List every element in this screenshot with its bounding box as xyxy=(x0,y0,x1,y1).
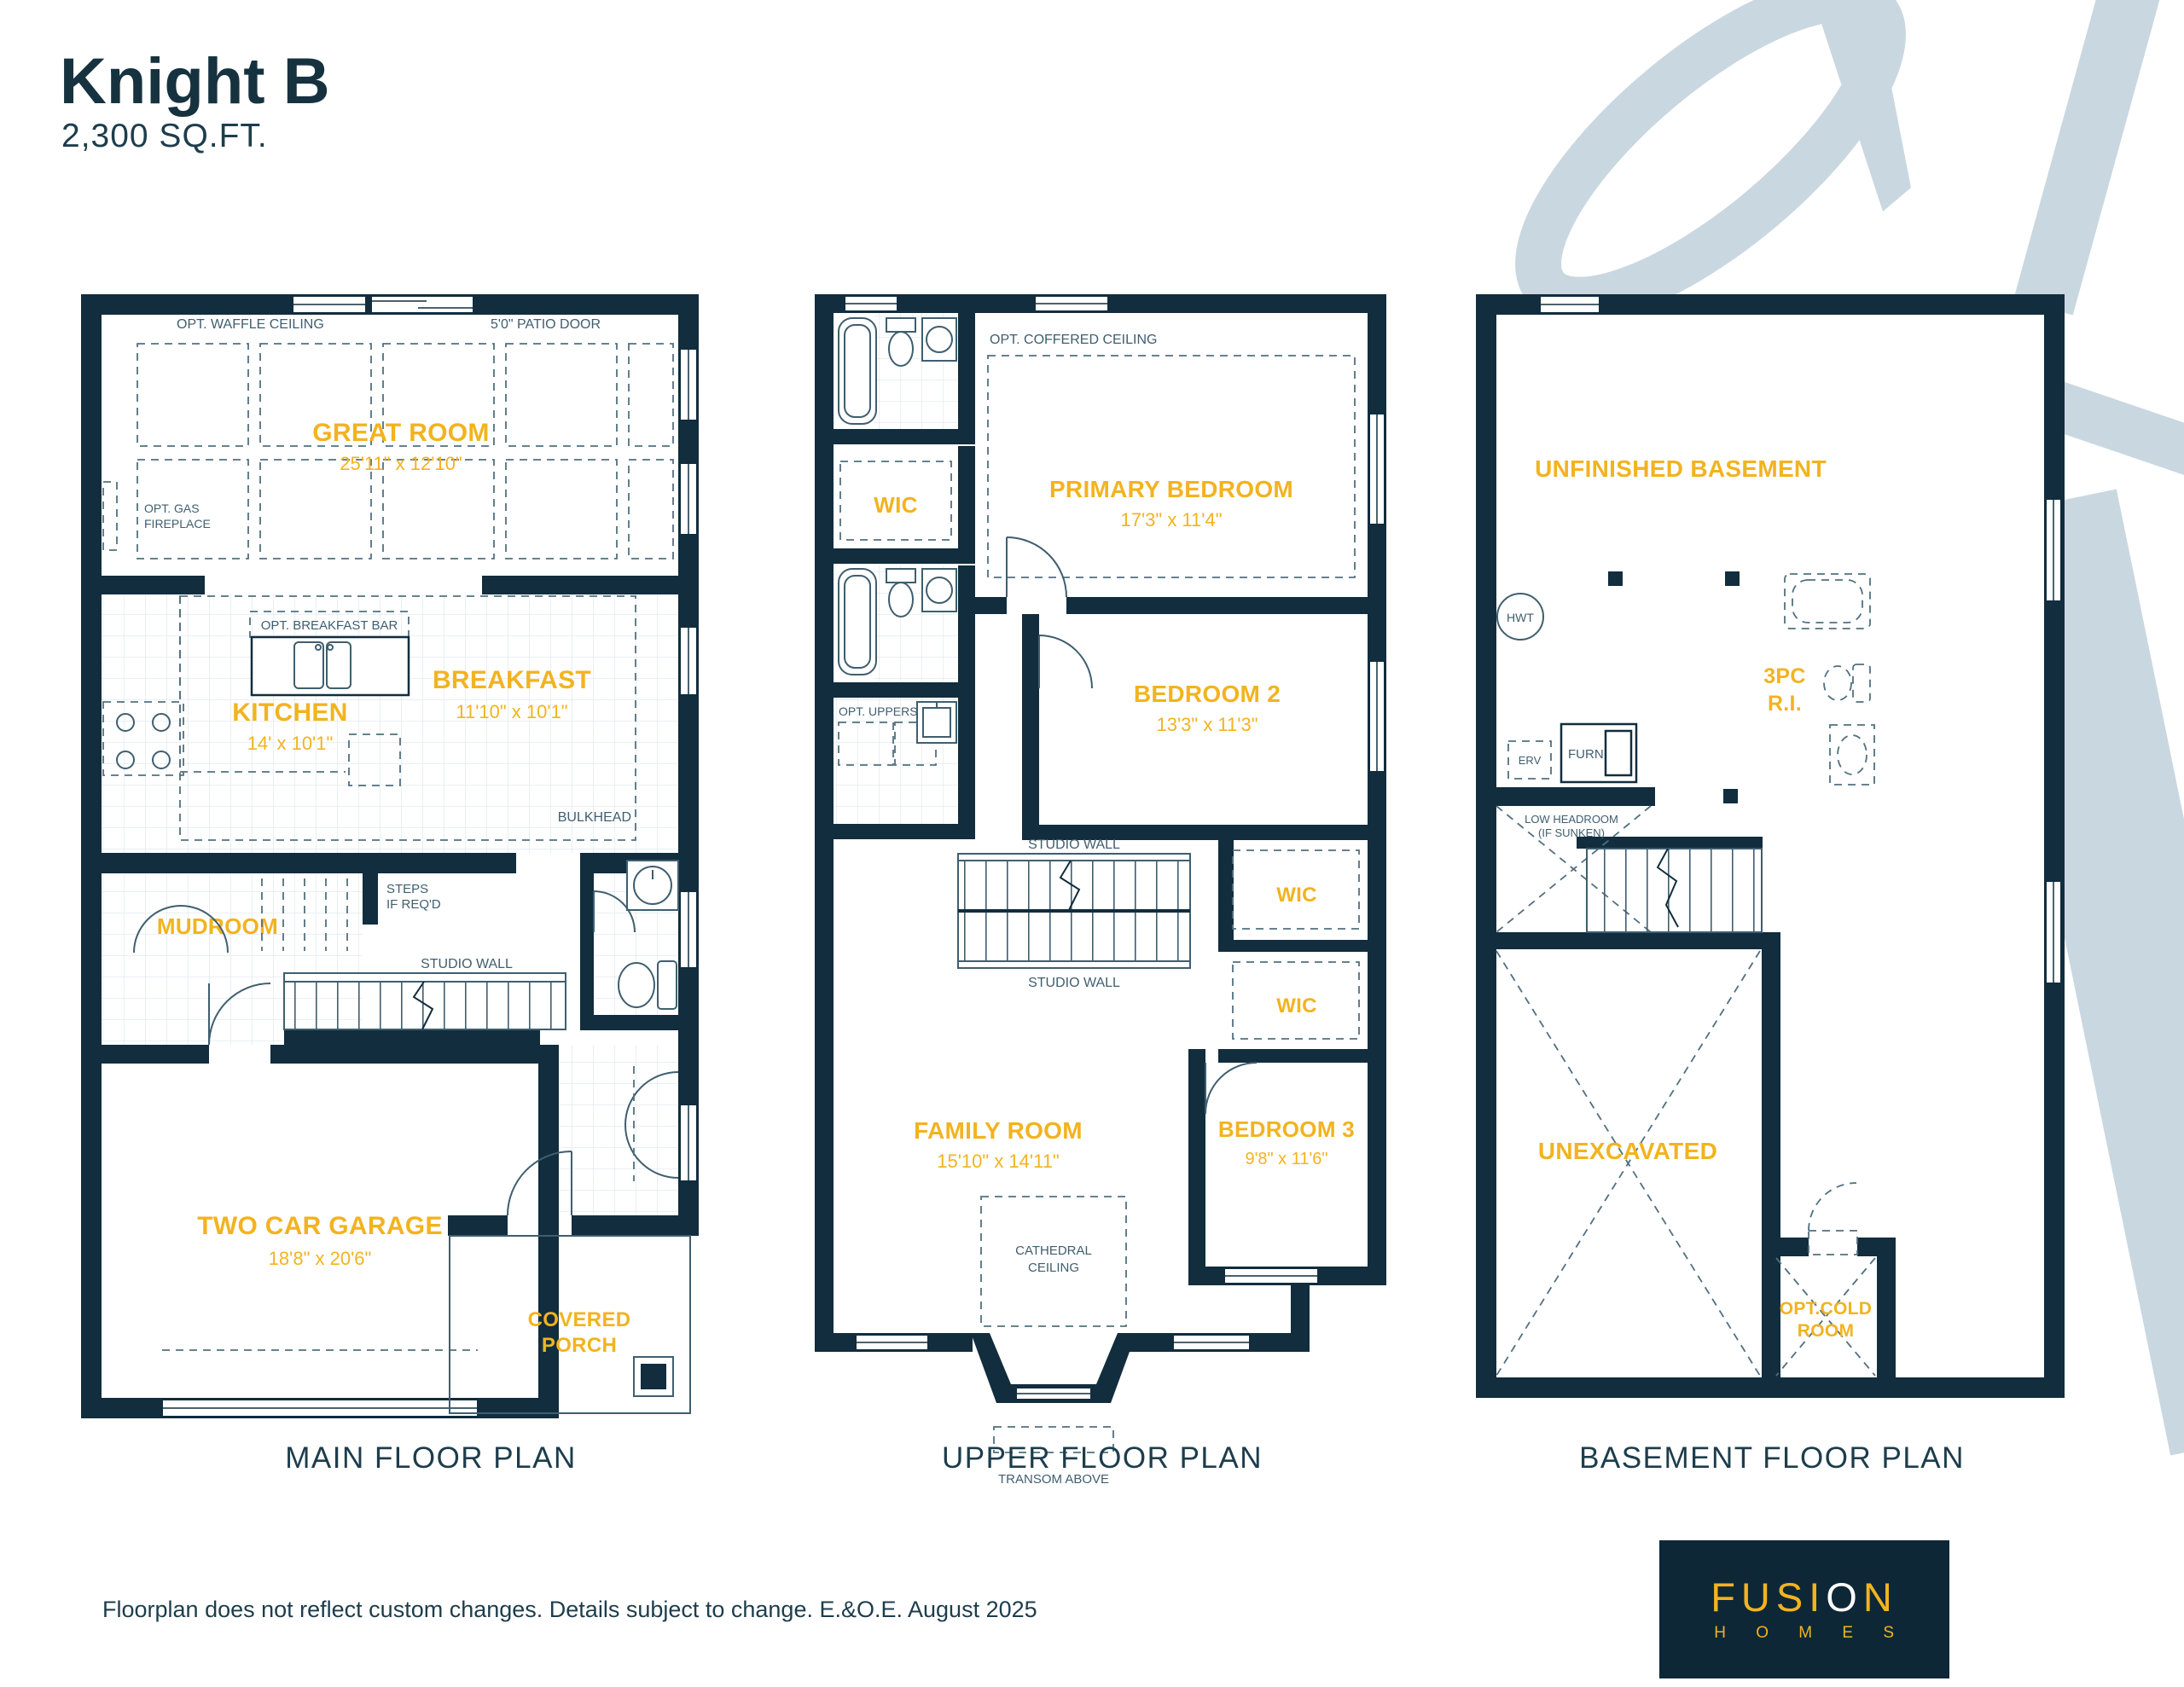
mudroom-label: MUDROOM xyxy=(157,913,278,939)
cold-room-label-2: ROOM xyxy=(1798,1321,1855,1341)
kitchen-label: KITCHEN xyxy=(232,699,347,727)
floorplan-sheet: Knight B 2,300 SQ.FT. xyxy=(0,0,2184,1687)
cold-room-label-1: OPT.COLD xyxy=(1780,1299,1873,1319)
window-icon xyxy=(293,296,366,313)
window-icon xyxy=(856,1335,928,1350)
hwt-label: HWT xyxy=(1507,611,1534,624)
logo-fusi: FUSI xyxy=(1711,1574,1826,1620)
upper-stairs: STUDIO WALL STUDIO WALL xyxy=(958,838,1190,990)
basement-floor-plan: UNFINISHED BASEMENT HWT 3PC R.I. xyxy=(1476,294,2065,1399)
breakfast-dims: 11'10" x 10'1" xyxy=(456,701,567,722)
threepc-label-1: 3PC xyxy=(1763,664,1806,688)
steps-note-2: IF REQ'D xyxy=(386,897,441,912)
primary-bedroom-label: PRIMARY BEDROOM xyxy=(1049,476,1293,502)
waffle-ceiling-note: OPT. WAFFLE CEILING xyxy=(177,317,324,332)
studio-wall-note-bottom: STUDIO WALL xyxy=(1028,976,1120,990)
upper-floor-plan-caption: UPPER FLOOR PLAN xyxy=(942,1441,1263,1475)
sink-icon xyxy=(922,569,956,612)
window-icon xyxy=(680,627,697,695)
studio-wall-note: STUDIO WALL xyxy=(421,957,513,971)
gas-fireplace-note-1: OPT. GAS xyxy=(144,501,200,515)
window-icon xyxy=(845,296,897,311)
garage-door-icon xyxy=(162,1400,478,1417)
garage-label: TWO CAR GARAGE xyxy=(197,1212,443,1240)
breakfast-label: BREAKFAST xyxy=(433,666,591,694)
main-floor-plan: OPT. WAFFLE CEILING 5'0" PATIO DOOR OPT.… xyxy=(81,294,700,1420)
main-floor-plan-caption: MAIN FLOOR PLAN xyxy=(285,1441,576,1475)
logo-o-ring: O xyxy=(1826,1574,1863,1620)
window-icon xyxy=(1369,414,1385,525)
furnace-icon: FURN xyxy=(1561,724,1636,782)
kitchen-island-sink-icon xyxy=(252,637,409,695)
breakfast-bar-note: OPT. BREAKFAST BAR xyxy=(261,618,398,633)
logo-homes: H O M E S xyxy=(1714,1624,1907,1643)
bedroom3-label: BEDROOM 3 xyxy=(1218,1116,1355,1142)
cathedral-ceiling-note-1: CATHEDRAL xyxy=(1015,1244,1092,1258)
wic-label: WIC xyxy=(874,492,917,518)
family-room-label: FAMILY ROOM xyxy=(914,1117,1083,1144)
porch-label-1: COVERED xyxy=(528,1308,631,1331)
unexcavated-label: UNEXCAVATED xyxy=(1538,1138,1717,1164)
sink-icon xyxy=(627,861,678,910)
bulkhead-note: BULKHEAD xyxy=(558,810,631,825)
great-room-dims: 25'11" x 12'10" xyxy=(340,453,462,474)
basement-floor-plan-caption: BASEMENT FLOOR PLAN xyxy=(1579,1441,1965,1475)
post-icon xyxy=(1608,571,1623,586)
window-icon xyxy=(1173,1335,1250,1350)
toilet-icon xyxy=(886,569,915,617)
studio-wall-note-top: STUDIO WALL xyxy=(1028,838,1120,852)
bedroom2-label: BEDROOM 2 xyxy=(1134,681,1281,707)
primary-bedroom-dims: 17'3" x 11'4" xyxy=(1120,509,1222,530)
bathtub-icon xyxy=(839,318,876,424)
opt-uppers-note: OPT. UPPERS xyxy=(839,704,918,718)
window-icon xyxy=(1369,661,1385,772)
sink-icon xyxy=(922,318,956,361)
low-headroom-note-2: (IF SUNKEN) xyxy=(1538,826,1605,839)
wic-label: WIC xyxy=(1276,884,1317,907)
laundry-sink-icon xyxy=(917,702,956,743)
toilet-icon xyxy=(886,318,915,366)
square-footage: 2,300 SQ.FT. xyxy=(61,118,268,155)
patio-door-note: 5'0" PATIO DOOR xyxy=(491,317,601,332)
coffered-ceiling-note: OPT. COFFERED CEILING xyxy=(990,333,1157,347)
great-room-label: GREAT ROOM xyxy=(312,419,489,447)
toilet-icon xyxy=(619,961,677,1009)
cathedral-ceiling-note-2: CEILING xyxy=(1028,1261,1079,1275)
furnace-label: FURN xyxy=(1568,747,1604,762)
window-icon xyxy=(680,891,697,968)
gas-fireplace-note-2: FIREPLACE xyxy=(144,517,211,530)
post-icon xyxy=(1723,789,1738,803)
window-icon xyxy=(1224,1268,1318,1284)
window-icon xyxy=(680,349,697,420)
family-room-dims: 15'10" x 14'11" xyxy=(937,1151,1060,1172)
page-title: Knight B xyxy=(60,44,330,119)
patio-door-icon xyxy=(371,296,473,313)
window-icon xyxy=(680,1104,697,1181)
bedroom3-dims: 9'8" x 11'6" xyxy=(1245,1150,1327,1168)
garage-dims: 18'8" x 20'6" xyxy=(269,1248,372,1269)
logo-wordmark: FUSION xyxy=(1711,1577,1898,1617)
kitchen-dims: 14' x 10'1" xyxy=(247,733,334,754)
threepc-label-2: R.I. xyxy=(1768,692,1802,716)
logo-n: N xyxy=(1863,1574,1898,1620)
window-icon xyxy=(1540,296,1600,313)
upper-floor-plan: WIC OPT. UPPERS OPT. COFFERED CEILING PR… xyxy=(815,294,1386,1497)
bedroom2-dims: 13'3" x 11'3" xyxy=(1156,714,1258,735)
window-icon xyxy=(680,463,697,535)
unfinished-basement-label: UNFINISHED BASEMENT xyxy=(1535,455,1827,482)
fusion-homes-logo: FUSION H O M E S xyxy=(1659,1540,1949,1678)
low-headroom-note-1: LOW HEADROOM xyxy=(1525,813,1618,826)
window-icon xyxy=(1035,296,1108,311)
post-icon xyxy=(1725,571,1740,586)
erv-label: ERV xyxy=(1519,754,1542,767)
window-icon xyxy=(2046,881,2061,983)
basement-stairs xyxy=(1587,849,1762,932)
window-icon xyxy=(2046,499,2061,601)
porch-label-2: PORCH xyxy=(542,1334,617,1357)
wic-label: WIC xyxy=(1276,994,1317,1017)
steps-note-1: STEPS xyxy=(386,882,428,896)
disclaimer-text: Floorplan does not reflect custom change… xyxy=(102,1597,1037,1623)
bathtub-icon xyxy=(839,569,876,675)
bay-window-icon xyxy=(1016,1388,1091,1400)
